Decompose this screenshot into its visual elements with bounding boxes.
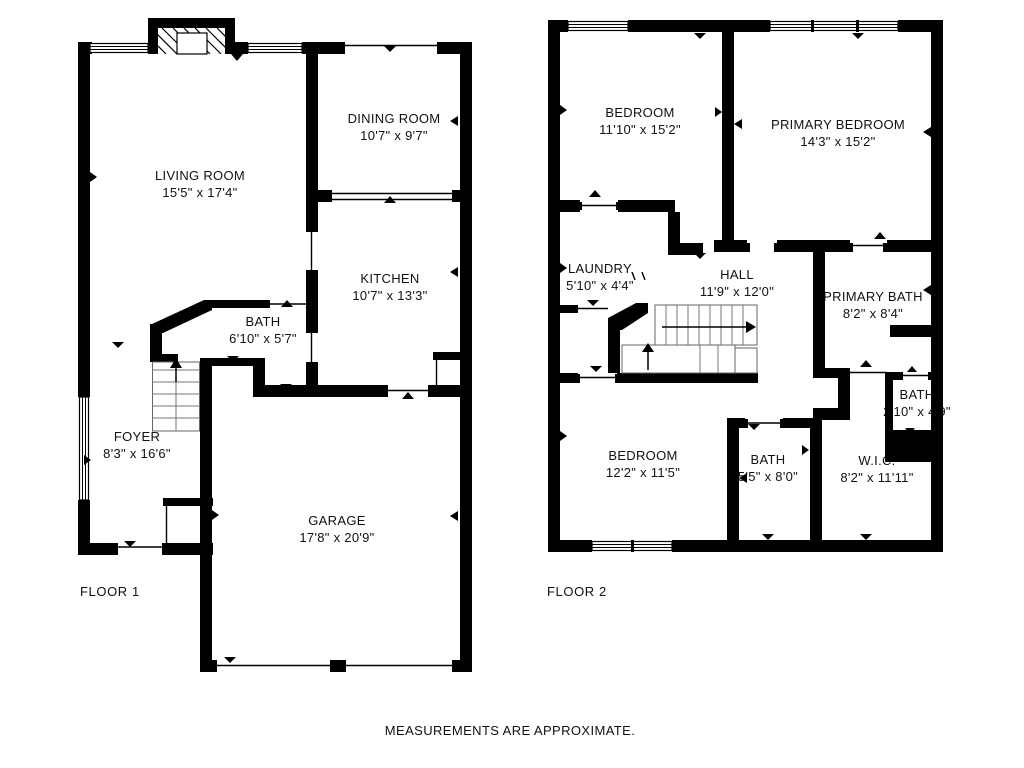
- room-dims: 14'3" x 15'2": [771, 133, 905, 150]
- room-label-laundry: LAUNDRY 5'10" x 4'4": [566, 260, 634, 294]
- room-name: BEDROOM: [606, 447, 680, 464]
- room-dims: 8'2" x 8'4": [823, 305, 923, 322]
- footer-note: MEASUREMENTS ARE APPROXIMATE.: [385, 723, 635, 738]
- room-name: BATH: [229, 313, 297, 330]
- room-name: BATH: [883, 386, 951, 403]
- room-name: BATH: [738, 451, 798, 468]
- room-dims: 17'8" x 20'9": [299, 529, 374, 546]
- floor2-label: FLOOR 2: [547, 584, 607, 599]
- room-dims: 11'10" x 15'2": [599, 121, 681, 138]
- room-name: GARAGE: [299, 512, 374, 529]
- room-dims: 10'7" x 13'3": [352, 287, 427, 304]
- room-label-hall: HALL 11'9" x 12'0": [700, 266, 774, 300]
- room-name: KITCHEN: [352, 270, 427, 287]
- room-label-bedroom-1: BEDROOM 11'10" x 15'2": [599, 104, 681, 138]
- room-name: LIVING ROOM: [155, 167, 245, 184]
- room-dims: 11'9" x 12'0": [700, 283, 774, 300]
- room-label-bath-small: BATH 2'10" x 4'9": [883, 386, 951, 420]
- room-dims: 10'7" x 9'7": [348, 127, 441, 144]
- room-label-living-room: LIVING ROOM 15'5" x 17'4": [155, 167, 245, 201]
- room-label-bath-floor1: BATH 6'10" x 5'7": [229, 313, 297, 347]
- room-dims: 8'3" x 16'6": [103, 445, 171, 462]
- floor1-fireplace: [140, 18, 243, 54]
- floor1-stairs: [152, 358, 200, 431]
- room-name: HALL: [700, 266, 774, 283]
- room-dims: 15'5" x 17'4": [155, 184, 245, 201]
- room-dims: 5'10" x 4'4": [566, 277, 634, 294]
- floor2-stairs: [622, 305, 757, 373]
- floor1-label: FLOOR 1: [80, 584, 140, 599]
- room-name: BEDROOM: [599, 104, 681, 121]
- room-name: LAUNDRY: [566, 260, 634, 277]
- room-name: DINING ROOM: [348, 110, 441, 127]
- room-label-bath-middle: BATH 5'5" x 8'0": [738, 451, 798, 485]
- room-dims: 8'2" x 11'11": [840, 469, 913, 486]
- room-label-wic: W.I.C. 8'2" x 11'11": [840, 452, 913, 486]
- room-name: PRIMARY BEDROOM: [771, 116, 905, 133]
- room-label-primary-bath: PRIMARY BATH 8'2" x 8'4": [823, 288, 923, 322]
- room-dims: 2'10" x 4'9": [883, 403, 951, 420]
- room-dims: 6'10" x 5'7": [229, 330, 297, 347]
- room-dims: 12'2" x 11'5": [606, 464, 680, 481]
- fireplace-hatching: [140, 28, 243, 54]
- room-label-primary-bedroom: PRIMARY BEDROOM 14'3" x 15'2": [771, 116, 905, 150]
- room-label-foyer: FOYER 8'3" x 16'6": [103, 428, 171, 462]
- room-label-dining-room: DINING ROOM 10'7" x 9'7": [348, 110, 441, 144]
- room-label-garage: GARAGE 17'8" x 20'9": [299, 512, 374, 546]
- room-name: W.I.C.: [840, 452, 913, 469]
- room-name: FOYER: [103, 428, 171, 445]
- room-label-kitchen: KITCHEN 10'7" x 13'3": [352, 270, 427, 304]
- floorplan-canvas: LIVING ROOM 15'5" x 17'4" DINING ROOM 10…: [0, 0, 1024, 768]
- room-name: PRIMARY BATH: [823, 288, 923, 305]
- room-dims: 5'5" x 8'0": [738, 468, 798, 485]
- room-label-bedroom-2: BEDROOM 12'2" x 11'5": [606, 447, 680, 481]
